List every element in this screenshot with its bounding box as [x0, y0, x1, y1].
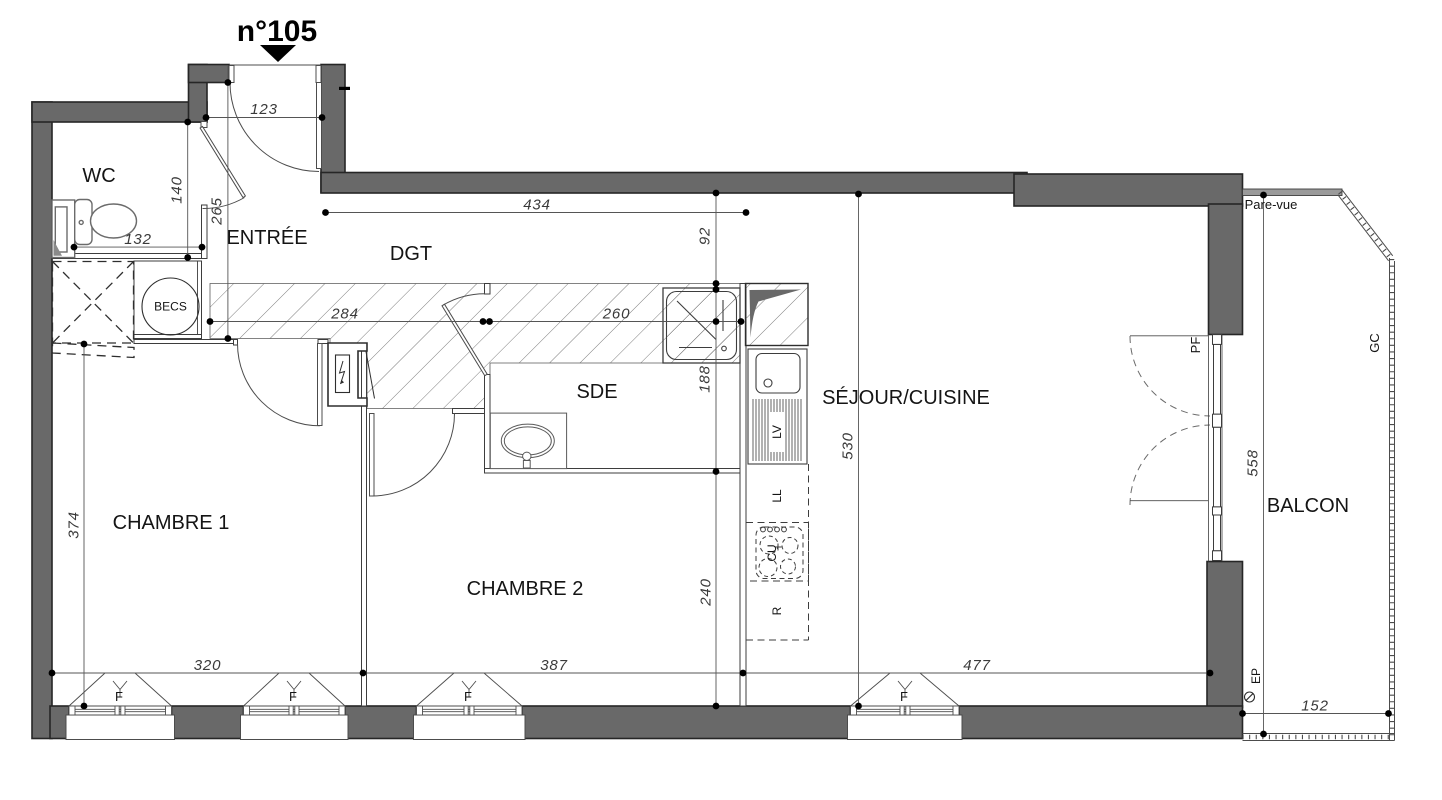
svg-text:LV: LV	[770, 425, 784, 439]
svg-text:GC: GC	[1367, 333, 1382, 353]
svg-text:558: 558	[1245, 449, 1262, 476]
svg-text:LL: LL	[770, 489, 784, 503]
svg-text:F: F	[115, 689, 123, 704]
svg-text:BECS: BECS	[154, 300, 187, 314]
svg-text:140: 140	[169, 176, 186, 203]
svg-text:DGT: DGT	[390, 243, 432, 265]
svg-text:92: 92	[697, 227, 714, 245]
svg-text:CHAMBRE 2: CHAMBRE 2	[467, 578, 584, 600]
svg-text:284: 284	[330, 306, 358, 323]
svg-text:530: 530	[840, 432, 857, 459]
svg-text:374: 374	[66, 511, 83, 538]
svg-text:n°105: n°105	[237, 15, 317, 48]
svg-text:260: 260	[602, 306, 630, 323]
svg-text:ENTRÉE: ENTRÉE	[226, 226, 307, 249]
svg-text:EP: EP	[1249, 668, 1263, 684]
svg-text:434: 434	[523, 197, 550, 214]
svg-text:240: 240	[698, 578, 715, 606]
svg-text:SDE: SDE	[576, 381, 617, 403]
svg-text:320: 320	[194, 657, 221, 674]
svg-text:265: 265	[209, 197, 226, 225]
svg-text:WC: WC	[82, 165, 115, 187]
svg-text:CU: CU	[765, 544, 779, 561]
svg-text:387: 387	[540, 657, 567, 674]
svg-text:152: 152	[1301, 698, 1328, 715]
svg-text:123: 123	[250, 101, 277, 118]
svg-text:CHAMBRE 1: CHAMBRE 1	[113, 512, 230, 534]
svg-text:F: F	[900, 689, 908, 704]
svg-text:477: 477	[963, 657, 990, 674]
svg-text:R: R	[770, 606, 784, 615]
svg-text:BALCON: BALCON	[1267, 495, 1349, 517]
svg-text:F: F	[289, 689, 297, 704]
svg-text:132: 132	[124, 231, 151, 248]
svg-text:SÉJOUR/CUISINE: SÉJOUR/CUISINE	[822, 386, 990, 409]
svg-text:Pare-vue: Pare-vue	[1245, 197, 1298, 212]
svg-text:PF: PF	[1188, 337, 1203, 354]
svg-text:188: 188	[697, 365, 714, 392]
svg-text:F: F	[464, 689, 472, 704]
